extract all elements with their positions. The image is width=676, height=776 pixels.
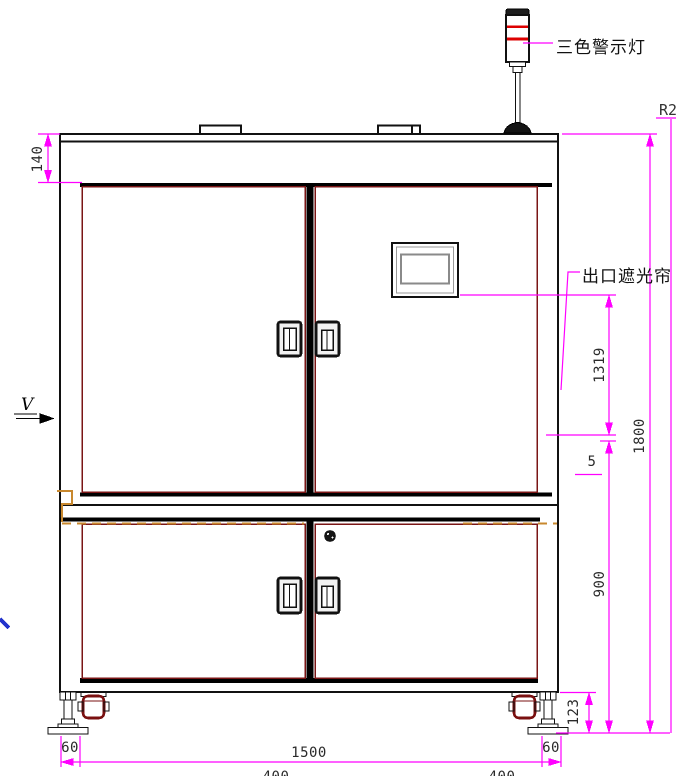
light-pole xyxy=(516,73,521,123)
beacon-band-1 xyxy=(507,26,528,29)
dim-5: 5 xyxy=(588,454,597,470)
upper-left-handle xyxy=(278,322,301,356)
leader-light-curtain xyxy=(561,272,580,390)
right-caster-icon xyxy=(509,692,540,718)
lower-right-door xyxy=(315,524,537,678)
warning-light-icon xyxy=(504,9,531,133)
top-bump-left xyxy=(200,126,241,135)
lower-left-handle xyxy=(278,578,301,613)
upper-right-door xyxy=(315,187,537,493)
lower-right-handle xyxy=(316,578,339,613)
left-foot-pad xyxy=(48,728,88,735)
upper-right-handle xyxy=(316,322,339,356)
light-curtain-label: 出口遮光帘 xyxy=(582,262,672,287)
beacon-band-2 xyxy=(507,38,528,41)
lower-door-divider xyxy=(307,521,314,683)
light-base xyxy=(504,123,531,134)
dim-1500: 1500 xyxy=(291,745,327,761)
corner-ref-label: R2 xyxy=(659,101,676,119)
tower-light-label: 三色警示灯 xyxy=(556,33,646,58)
dim-900: 900 xyxy=(592,571,608,598)
dim-140: 140 xyxy=(30,146,46,173)
dim-60-left: 60 xyxy=(61,740,79,756)
dim-1800: 1800 xyxy=(632,418,648,454)
dim-400-right: 400 xyxy=(489,769,516,776)
dim-400-left: 400 xyxy=(263,769,290,776)
lower-left-door xyxy=(82,524,305,678)
upper-left-door xyxy=(82,187,305,493)
blue-stray-mark xyxy=(0,619,9,628)
frame-thick-bars xyxy=(60,183,552,683)
dim-123: 123 xyxy=(566,699,582,726)
key-lock-icon xyxy=(324,530,336,542)
upper-door-divider xyxy=(307,186,314,496)
left-foot-shaft xyxy=(64,700,72,719)
top-bump-right xyxy=(378,126,420,135)
dim-60-right: 60 xyxy=(542,740,560,756)
right-foot-shaft xyxy=(544,700,552,719)
view-arrow xyxy=(14,414,54,419)
drawing-linework xyxy=(0,0,676,776)
view-marker-label: V xyxy=(21,395,33,415)
left-caster-icon xyxy=(78,692,109,718)
cad-machine-front-view: 三色警示灯 出口遮光帘 V R2 140 1319 1800 5 900 123… xyxy=(0,0,676,776)
dim-1319: 1319 xyxy=(592,347,608,383)
dimension-lines xyxy=(38,43,676,767)
hmi-panel xyxy=(392,243,458,297)
